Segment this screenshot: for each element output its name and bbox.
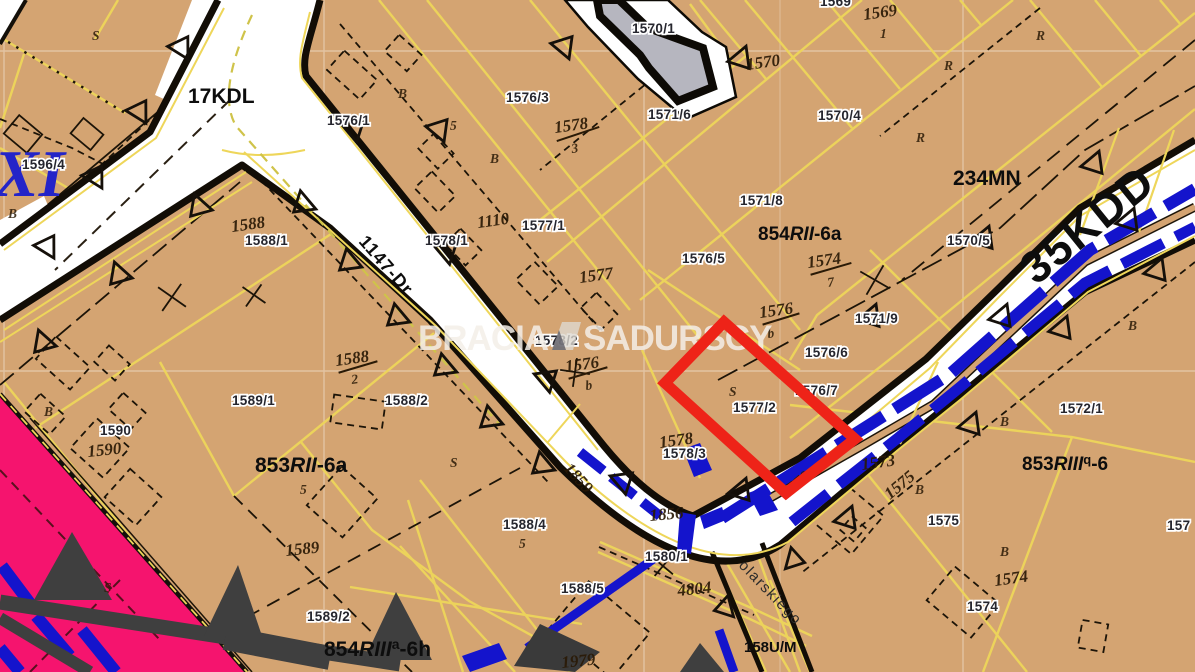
svg-text:1570/5: 1570/5 — [947, 233, 990, 248]
svg-text:1589/1: 1589/1 — [232, 393, 275, 408]
svg-text:158U/M: 158U/M — [744, 639, 797, 656]
svg-text:B: B — [999, 414, 1009, 429]
svg-text:R: R — [1035, 28, 1045, 43]
svg-text:1590: 1590 — [86, 438, 122, 461]
svg-text:1589/2: 1589/2 — [307, 609, 350, 624]
svg-text:17KDL: 17KDL — [188, 85, 255, 108]
svg-text:1577/1: 1577/1 — [522, 218, 565, 233]
svg-text:1588/4: 1588/4 — [503, 517, 546, 532]
svg-text:S: S — [450, 455, 458, 470]
svg-text:1588/1: 1588/1 — [245, 233, 288, 248]
svg-text:1596/4: 1596/4 — [22, 157, 65, 172]
svg-text:1: 1 — [880, 26, 887, 41]
svg-text:BRACIA: BRACIA — [418, 319, 549, 358]
svg-text:1572/1: 1572/1 — [1060, 401, 1103, 416]
svg-text:S: S — [104, 580, 112, 595]
svg-text:1575: 1575 — [928, 513, 959, 528]
svg-text:1578/1: 1578/1 — [425, 233, 468, 248]
svg-text:1576/5: 1576/5 — [682, 251, 725, 266]
svg-text:S: S — [92, 28, 100, 43]
svg-text:1576/1: 1576/1 — [327, 113, 370, 128]
svg-text:854RII-6a: 854RII-6a — [758, 224, 842, 245]
svg-text:234MN: 234MN — [953, 167, 1021, 190]
svg-text:1571/9: 1571/9 — [855, 311, 898, 326]
svg-text:XI: XI — [0, 137, 67, 211]
svg-text:1571/6: 1571/6 — [648, 107, 691, 122]
svg-text:5: 5 — [300, 482, 307, 497]
svg-text:853RII-6a: 853RII-6a — [255, 454, 348, 477]
svg-text:1589: 1589 — [284, 537, 320, 560]
svg-text:854RIIIa-6h: 854RIIIa-6h — [324, 636, 431, 661]
svg-text:S: S — [729, 384, 737, 399]
svg-text:1570/1: 1570/1 — [632, 21, 675, 36]
svg-text:B: B — [1127, 318, 1137, 333]
svg-text:R: R — [943, 58, 953, 73]
svg-text:5: 5 — [450, 118, 457, 133]
svg-text:1856: 1856 — [649, 503, 685, 525]
svg-text:1577/2: 1577/2 — [733, 400, 776, 415]
svg-text:B: B — [489, 151, 499, 166]
svg-text:B: B — [7, 206, 17, 221]
svg-text:R: R — [915, 130, 925, 145]
svg-text:1574: 1574 — [967, 599, 998, 614]
svg-text:B: B — [999, 544, 1009, 559]
svg-text:1576/6: 1576/6 — [805, 345, 848, 360]
svg-text:157: 157 — [1167, 518, 1190, 533]
svg-text:1571/8: 1571/8 — [740, 193, 783, 208]
svg-text:B: B — [914, 482, 924, 497]
svg-text:1569: 1569 — [820, 0, 851, 9]
svg-text:1590: 1590 — [100, 423, 131, 438]
svg-text:1580/1: 1580/1 — [645, 549, 688, 564]
svg-text:B: B — [397, 86, 407, 101]
svg-text:853RIIIq-6: 853RIIIq-6 — [1022, 452, 1108, 475]
svg-text:4804: 4804 — [675, 578, 712, 601]
svg-text:5: 5 — [519, 536, 526, 551]
svg-text:1588/2: 1588/2 — [385, 393, 428, 408]
svg-text:1979: 1979 — [560, 649, 596, 672]
svg-text:1576/3: 1576/3 — [506, 90, 549, 105]
svg-text:1570/4: 1570/4 — [818, 108, 861, 123]
svg-text:B: B — [43, 404, 53, 419]
svg-text:1588/5: 1588/5 — [561, 581, 604, 596]
